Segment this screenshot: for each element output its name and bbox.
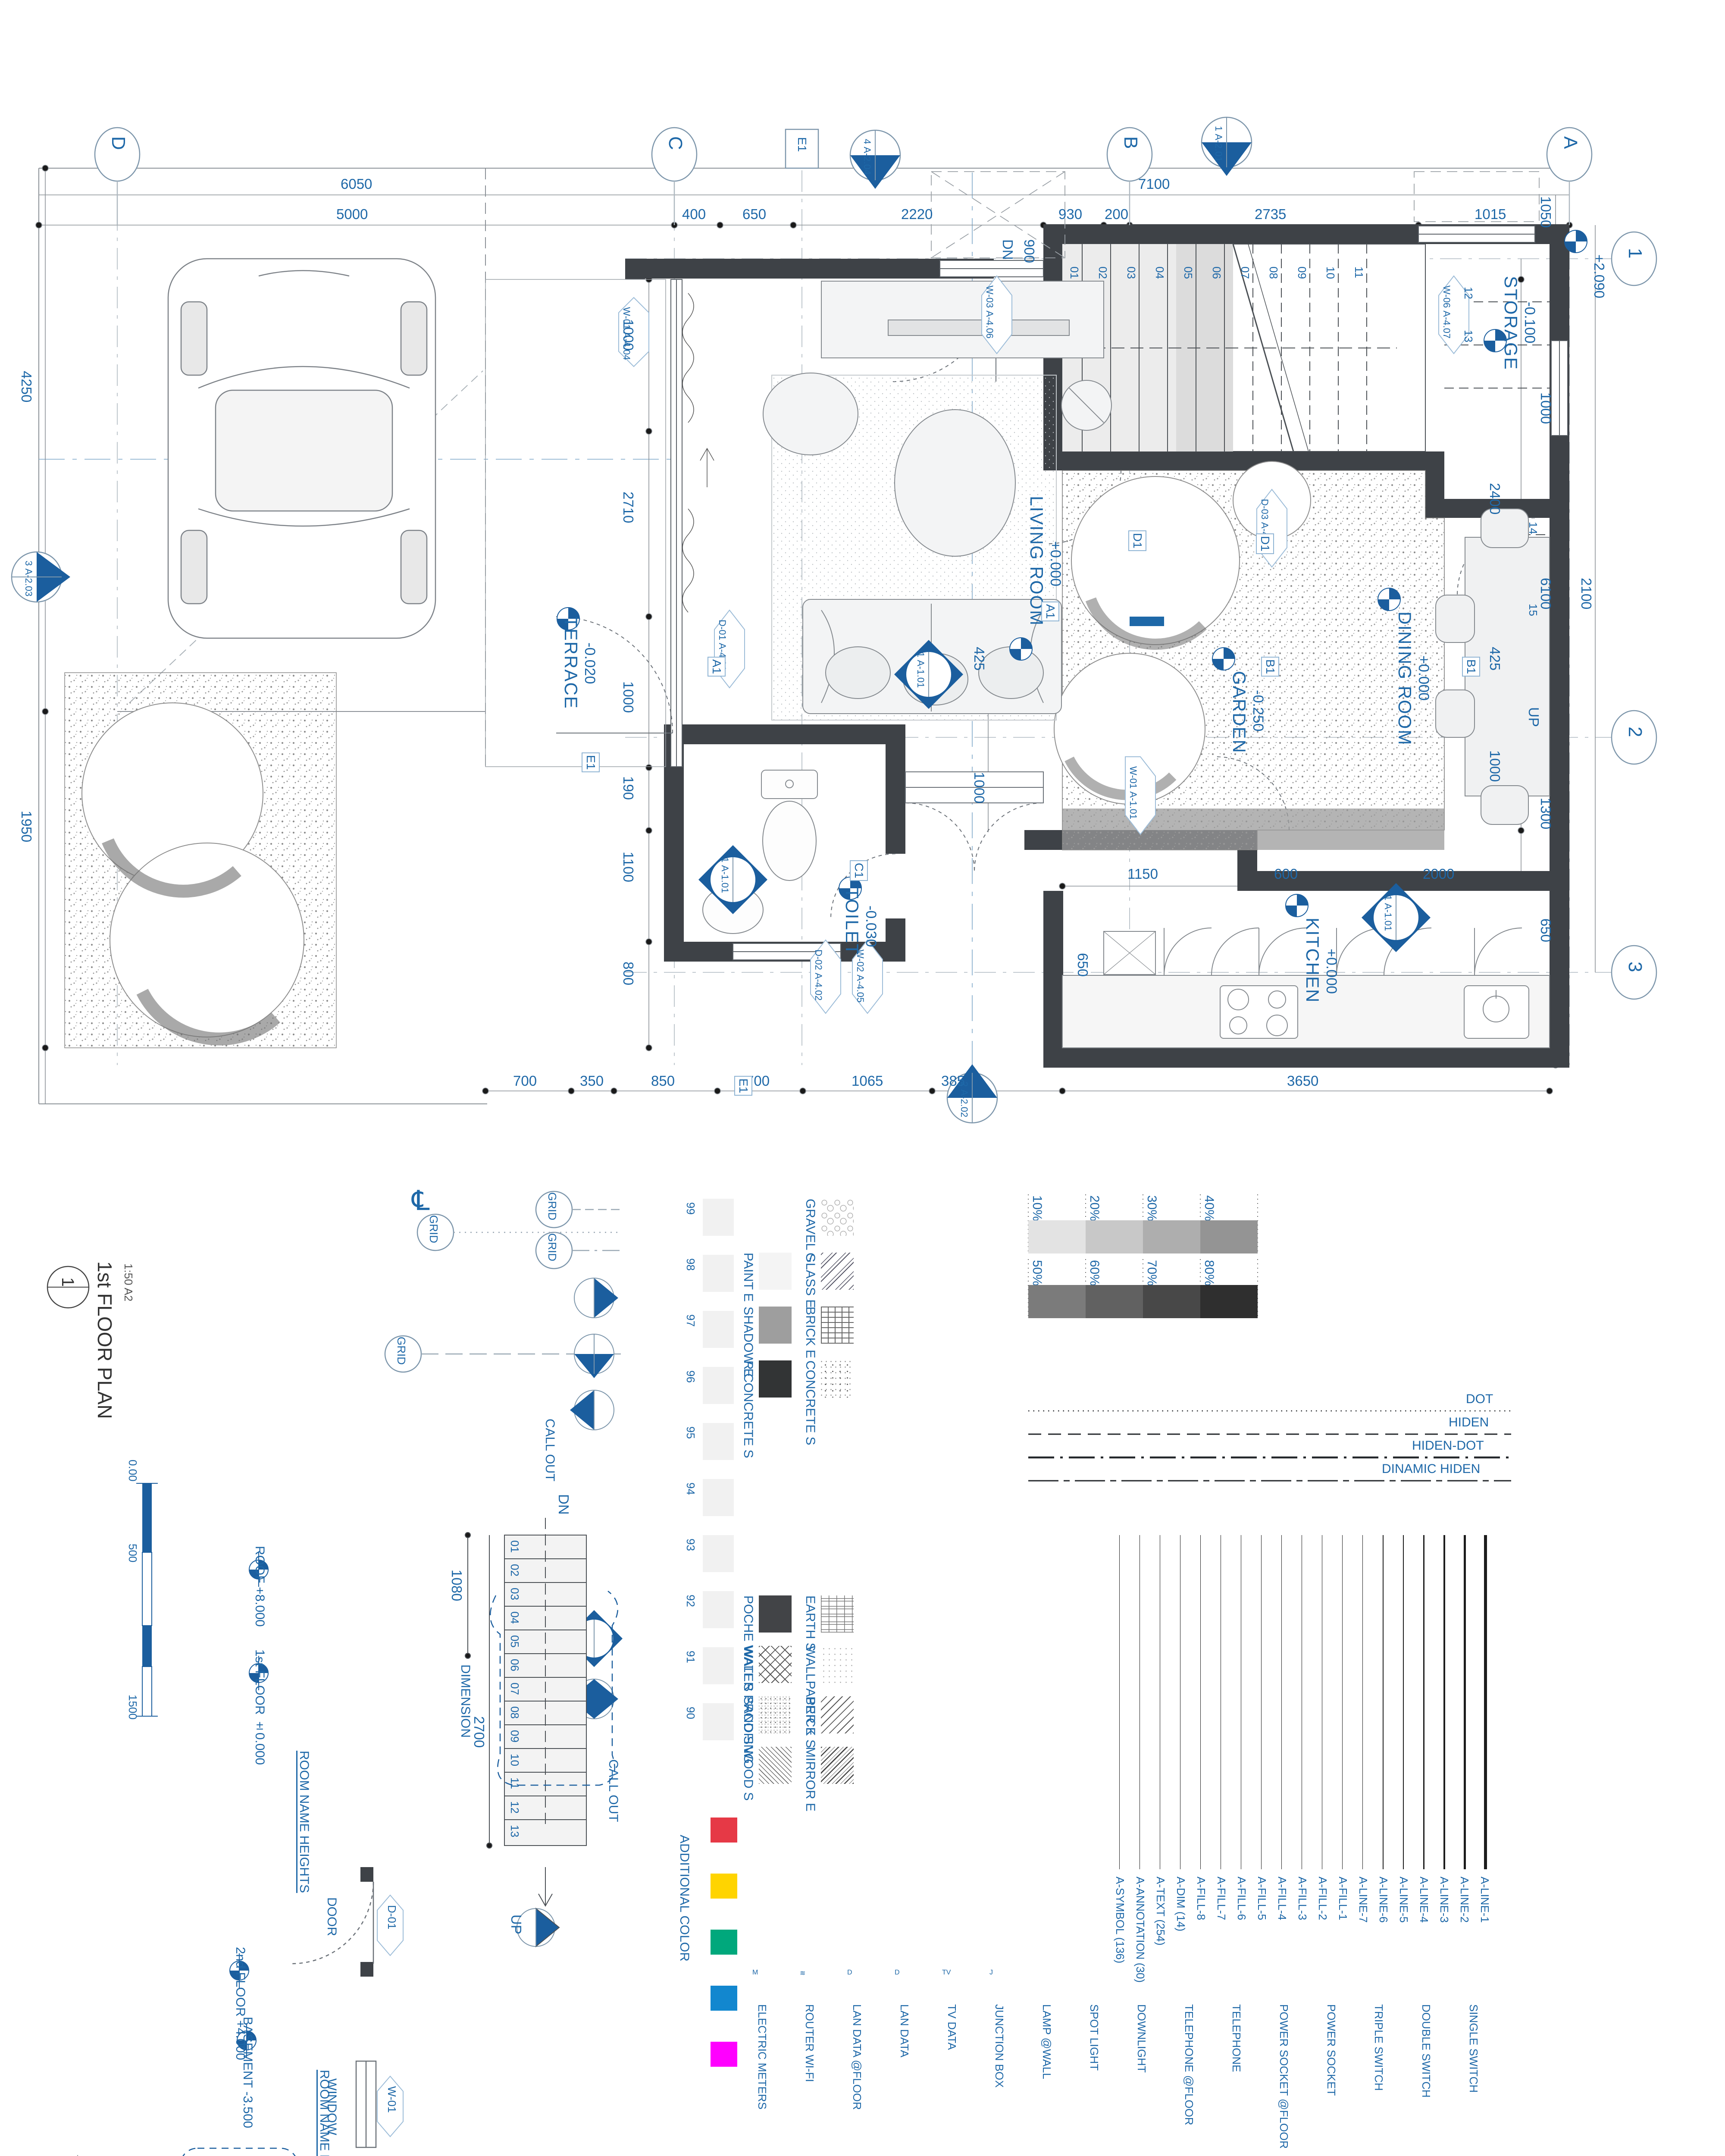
legend-stair-step: 13 (508, 1825, 521, 1837)
dim: 850 (651, 1073, 675, 1089)
window-tag-w03: W-03 A-4.06 (985, 285, 995, 338)
percent-segment (1028, 1220, 1086, 1253)
material-swatch (759, 1307, 792, 1344)
toilet-fixtures (703, 770, 817, 934)
number-swatch-label: 97 (684, 1314, 697, 1327)
symbol-label: LAN DATA (898, 2004, 911, 2057)
layer-line-label: A-FILL-2 (1316, 1877, 1329, 1920)
material-label: R.CONCRETE S (741, 1360, 755, 1458)
symbol-glyph (1464, 1969, 1484, 1989)
layer-line-sample (1342, 1535, 1343, 1869)
number-swatch-box (703, 1703, 734, 1740)
symbol-glyph: D (895, 1969, 914, 1989)
stair-step-13: 13 (1462, 330, 1475, 342)
callout-tag-d1b: D1 (1256, 533, 1274, 554)
percent-label: 70% (1144, 1260, 1159, 1286)
legend-stair-step: 01 (508, 1540, 521, 1553)
material-label: BRICK E (803, 1307, 817, 1358)
number-swatch-box (703, 1423, 734, 1460)
layer-line-sample (1484, 1535, 1487, 1869)
number-swatch-label: 99 (684, 1202, 697, 1215)
grid-bubble-c: C (664, 136, 686, 150)
symbol-label: DOUBLE SWITCH (1419, 2004, 1433, 2098)
material-label: SAND S (741, 1696, 755, 1745)
additional-color-swatch (711, 1986, 737, 2011)
dim: 2400 (1487, 483, 1503, 514)
scalebar-0: 0.00 (126, 1460, 139, 1482)
dim: 650 (1537, 918, 1554, 942)
dim: 7100 (1138, 176, 1170, 192)
stair-step: 04 (1153, 266, 1166, 279)
room-kitchen: KITCHEN (1302, 918, 1323, 1003)
symbol-glyph (1321, 1969, 1341, 1989)
grid-bubble-b: B (1120, 136, 1141, 149)
stair-step: 01 (1068, 266, 1081, 279)
legend-stair-step: 06 (508, 1659, 521, 1671)
material-swatch (821, 1696, 854, 1733)
material-swatch (759, 1360, 792, 1398)
dim: 1000 (620, 681, 636, 713)
number-swatch-label: 95 (684, 1426, 697, 1439)
layer-line-sample (1362, 1535, 1363, 1869)
symbol-label: SPOT LIGHT (1087, 2004, 1101, 2071)
callout-tag-d1a: D1 (1128, 530, 1146, 551)
dim: 425 (1487, 647, 1503, 671)
linestyle-dinamic-hiden: DINAMIC HIDEN (1382, 1462, 1480, 1476)
grid-legend-bubble: GRID (545, 1233, 559, 1261)
interior-elev-tag: 1 A-1.01 (720, 857, 730, 893)
number-swatch-box (703, 1311, 734, 1348)
room-toilet: TOILET (842, 887, 862, 956)
material-label: WOOD S (741, 1747, 755, 1801)
symbol-label: POWER SOCKET (1324, 2004, 1338, 2096)
legend-callout-label-2: CALL OUT (606, 1759, 620, 1822)
number-swatch-label: 90 (684, 1707, 697, 1719)
stair-dn: DN (999, 239, 1016, 260)
interior-elev-tag: 1 A-1.01 (916, 652, 926, 688)
legend-stair-step: 09 (508, 1730, 521, 1742)
legend-dn: DN (555, 1494, 572, 1515)
stair-level: +2.090 (1591, 254, 1607, 298)
layer-line-label: A-FILL-1 (1336, 1877, 1349, 1920)
dim: 1000 (1487, 750, 1503, 782)
legend-dimension-label: DIMENSION (458, 1664, 473, 1738)
symbol-glyph (1037, 1969, 1057, 1989)
percent-segment (1086, 1285, 1143, 1318)
additional-color-swatch (711, 1930, 737, 1955)
level-roof: ROOF +8.000 (252, 1546, 267, 1627)
material-swatch (821, 1646, 854, 1683)
symbol-label: JUNCTION BOX (992, 2004, 1006, 2088)
number-swatch-box (703, 1479, 734, 1516)
layer-line-label: A-LINE-5 (1397, 1877, 1410, 1923)
percent-label: 80% (1202, 1260, 1216, 1286)
scalebar-500: 500 (126, 1544, 139, 1562)
dim: 1050 (1537, 196, 1554, 228)
dim: 650 (742, 206, 766, 222)
symbol-glyph: J (989, 1969, 1009, 1989)
layer-line-sample (1423, 1535, 1424, 1869)
room-terrace-level: -0.020 (581, 642, 598, 684)
window-tag-w01: W-01 A-4.04 (622, 307, 632, 360)
additional-color-label: ADDITIONAL COLOR (677, 1835, 692, 1962)
number-swatch-box (703, 1535, 734, 1572)
stair-up: UP (1525, 707, 1542, 727)
layer-line-sample (1180, 1535, 1180, 1869)
grid-legend-bubble: GRID (394, 1337, 408, 1365)
dim: 2100 (1578, 578, 1594, 609)
legend-stair-step: 05 (508, 1635, 521, 1648)
layer-line-sample (1200, 1535, 1201, 1869)
material-swatch (759, 1747, 792, 1784)
stair-step-15: 15 (1526, 604, 1540, 616)
callout-tag-c1: C1 (850, 860, 868, 881)
dim: 1065 (852, 1073, 883, 1089)
layer-line-sample (1281, 1535, 1282, 1869)
symbol-glyph (1369, 1969, 1389, 1989)
legend-dim-2700: 2700 (471, 1716, 487, 1748)
material-label: GLASS E (803, 1253, 817, 1308)
car (168, 259, 435, 638)
legend-levels-glyphs (180, 1552, 298, 2156)
material-label: MIRROR E (803, 1747, 817, 1811)
symbol-glyph (1084, 1969, 1104, 1989)
stair-step: 11 (1352, 266, 1365, 278)
callout-tag-e1c: E1 (734, 1076, 752, 1096)
number-swatch-box (703, 1591, 734, 1628)
material-swatch (821, 1307, 854, 1344)
dim: 2220 (901, 206, 933, 222)
room-terrace: TERRACE (560, 617, 581, 709)
layer-line-label: A-FILL-4 (1275, 1877, 1289, 1920)
interior-elev-tag: 1 A-1.01 (1383, 895, 1393, 931)
dim: 1100 (620, 852, 636, 882)
layer-line-sample (1403, 1535, 1404, 1869)
percent-label: 20% (1087, 1195, 1102, 1221)
layer-line-sample (1383, 1535, 1384, 1869)
number-swatch-label: 96 (684, 1370, 697, 1383)
legend-callout-label-1: CALL OUT (542, 1419, 557, 1482)
symbol-glyph: D (847, 1969, 867, 1989)
number-swatch-label: 93 (684, 1539, 697, 1551)
layer-line-label: A-FILL-5 (1255, 1877, 1268, 1920)
dim: 4250 (18, 371, 34, 402)
dim: 1015 (1475, 206, 1506, 222)
symbol-label: ELECTRIC METERS (755, 2004, 769, 2109)
symbol-glyph (1416, 1969, 1436, 1989)
number-swatch-label: 98 (684, 1258, 697, 1271)
percent-segment (1143, 1285, 1200, 1318)
plan-title-number: 1 (58, 1277, 77, 1287)
material-swatch (821, 1360, 854, 1398)
symbol-label: LAMP @WALL (1040, 2004, 1053, 2079)
window-tag-w02: W-02 A-4.05 (855, 950, 865, 1003)
room-storage: STORAGE (1500, 276, 1521, 370)
dim: 190 (620, 776, 636, 800)
material-swatch (821, 1199, 854, 1236)
percent-segment (1086, 1220, 1143, 1253)
stair-step: 09 (1295, 266, 1309, 279)
legend-up: UP (508, 1915, 524, 1934)
legend-door-tag: D-01 (385, 1905, 398, 1929)
section-marker-4: 4 A-2.04 (862, 139, 872, 175)
additional-color-swatch (711, 2042, 737, 2067)
dim: 350 (580, 1073, 604, 1089)
layer-line-label: A-ANNOTATION (30) (1133, 1877, 1147, 1983)
dim: 3650 (1287, 1073, 1318, 1089)
stair-step: 08 (1267, 266, 1280, 279)
plan-title: 1st FLOOR PLAN (93, 1261, 116, 1419)
percent-label: 30% (1144, 1195, 1159, 1221)
layer-line-sample (1119, 1535, 1120, 1869)
dim: 5000 (336, 206, 368, 222)
symbol-glyph: ≋ (800, 1969, 820, 1989)
stair-step-12: 12 (1462, 287, 1475, 299)
layer-line-label: A-LINE-1 (1478, 1877, 1491, 1923)
dim: 650 (1074, 953, 1091, 977)
percent-label: 60% (1087, 1260, 1102, 1286)
symbol-label: SINGLE SWITCH (1467, 2004, 1480, 2093)
layer-line-sample (1464, 1535, 1466, 1869)
layer-line-sample (1221, 1535, 1221, 1869)
symbol-label: POWER SOCKET @FLOOR (1277, 2004, 1290, 2149)
layer-line-label: A-SYMBOL (136) (1113, 1877, 1127, 1963)
linestyle-hiden-dot: HIDEN-DOT (1412, 1438, 1484, 1453)
linestyle-hiden: HIDEN (1449, 1415, 1489, 1430)
dim: 1000 (1537, 392, 1554, 424)
material-swatch (759, 1646, 792, 1683)
layer-line-label: A-FILL-6 (1235, 1877, 1248, 1920)
dim: 700 (513, 1073, 537, 1089)
legend-stair-step: 02 (508, 1564, 521, 1576)
dim: 2735 (1255, 206, 1286, 222)
stair-step-14: 14 (1526, 522, 1540, 534)
room-dining: DINING ROOM (1394, 611, 1415, 746)
stair-step: 03 (1124, 266, 1138, 279)
material-swatch (821, 1253, 854, 1290)
layer-line-label: A-LINE-2 (1458, 1877, 1471, 1923)
symbol-label: TELEPHONE (1230, 2004, 1243, 2072)
layer-line-sample (1302, 1535, 1302, 1869)
site-trees (65, 673, 336, 1048)
legend-stair-step: 03 (508, 1588, 521, 1600)
material-label: BRICK S (803, 1696, 817, 1748)
dim: 800 (620, 962, 636, 985)
legend-stair-step: 10 (508, 1754, 521, 1766)
layer-line-label: A-LINE-4 (1417, 1877, 1431, 1923)
legend-window: WINDOW (324, 2078, 339, 2135)
plan-title-scale: 1:50 A2 (122, 1263, 135, 1301)
room-dining-level: +0.000 (1415, 655, 1432, 701)
section-marker-3: 3 A-2.03 (24, 561, 34, 596)
room-garden-level: -0.250 (1249, 690, 1266, 731)
legend-stair-step: 07 (508, 1683, 521, 1695)
level-1st: 1st FLOOR ±0.000 (252, 1649, 267, 1765)
symbol-label: TV DATA (945, 2004, 958, 2050)
number-swatch-label: 92 (684, 1595, 697, 1607)
symbol-label: DOWNLIGHT (1135, 2004, 1148, 2073)
layer-line-label: A-LINE-6 (1377, 1877, 1390, 1923)
material-label: CONCRETE S (803, 1360, 817, 1445)
legend-window-tag: W-01 (385, 2086, 398, 2113)
room-living-level: +0.000 (1047, 541, 1064, 586)
number-swatch-box (703, 1647, 734, 1684)
room-kitchen-level: +0.000 (1323, 949, 1340, 994)
dim: 6100 (1537, 578, 1554, 609)
symbol-glyph (1227, 1969, 1246, 1989)
dim: 6050 (341, 176, 372, 192)
layer-line-sample (1322, 1535, 1322, 1869)
legend-stair-step: 11 (508, 1777, 521, 1789)
centerline-symbol: ℄ (405, 1185, 437, 1217)
window-tag-w01b: W-01 A-1.01 (1128, 766, 1138, 819)
layer-line-label: A-FILL-3 (1296, 1877, 1309, 1920)
material-swatch (821, 1595, 854, 1633)
layer-line-sample (1241, 1535, 1241, 1869)
room-toilet-level: -0.030 (862, 906, 879, 947)
callout-tag-b1b: B1 (1462, 657, 1480, 677)
symbol-label: TELEPHONE @FLOOR (1182, 2004, 1196, 2125)
door-tag-d02: D-02 A-4.02 (814, 950, 823, 1001)
grid-tag-e1: E1 (795, 137, 809, 152)
material-swatch (821, 1747, 854, 1784)
layer-line-label: A-TEXT (254) (1154, 1877, 1167, 1946)
layer-line-label: A-DIM (14) (1174, 1877, 1187, 1931)
layer-line-label: A-LINE-3 (1437, 1877, 1451, 1923)
number-swatch-box (703, 1367, 734, 1404)
stair-step: 10 (1324, 266, 1337, 279)
layer-line-sample (1443, 1535, 1445, 1869)
dim: 2000 (1423, 866, 1454, 882)
symbol-label: LAN DATA @FLOOR (850, 2004, 864, 2110)
dim: 200 (1105, 206, 1128, 222)
material-swatch (759, 1696, 792, 1733)
dim: 1300 (1537, 798, 1554, 829)
level-basement: BASEMENT -3.500 (240, 2017, 255, 2128)
dim: 600 (1274, 866, 1298, 882)
callout-tag-b1a: B1 (1261, 657, 1279, 677)
layer-line-sample (1160, 1535, 1160, 1869)
number-swatch-label: 94 (684, 1482, 697, 1495)
callout-tag-a1: A1 (1041, 602, 1059, 621)
symbol-glyph (1179, 1969, 1199, 1989)
grid-bubble-3: 3 (1624, 962, 1646, 972)
stair-step: 05 (1181, 266, 1195, 279)
symbol-label: ROUTER WI-FI (803, 2004, 816, 2082)
legend-dim-1080: 1080 (448, 1570, 465, 1601)
grid-bubble-2: 2 (1624, 727, 1646, 737)
room-storage-level: -0.100 (1521, 302, 1538, 343)
symbol-glyph (1274, 1969, 1294, 1989)
grid-legend-bubble: GRID (545, 1192, 559, 1220)
percent-segment (1028, 1285, 1086, 1318)
legend-stair-step: 12 (508, 1801, 521, 1814)
percent-label: 50% (1030, 1260, 1044, 1286)
material-swatch (759, 1253, 792, 1290)
grid-bubble-1: 1 (1624, 248, 1646, 258)
stair-dn-width: 900 (1021, 239, 1037, 263)
callout-tag-e1b: E1 (582, 752, 600, 772)
scalebar-1500: 1500 (126, 1695, 139, 1720)
section-marker-2: 2 A-2.02 (959, 1081, 969, 1117)
percent-label: 40% (1202, 1195, 1216, 1221)
dim: 930 (1058, 206, 1082, 222)
stair-step: 06 (1210, 266, 1223, 279)
grid-bubble-a: A (1559, 136, 1581, 149)
grid-legend-bubble: GRID (427, 1215, 440, 1243)
section-marker-1: 1 A-2.01 (1214, 126, 1224, 162)
callout-tag-a1b: A1 (708, 657, 726, 677)
room-garden: GARDEN (1229, 671, 1249, 754)
layer-line-label: A-LINE-7 (1356, 1877, 1370, 1923)
dim: 2710 (620, 492, 636, 523)
layer-line-label: A-FILL-8 (1194, 1877, 1208, 1920)
additional-color-swatch (711, 1874, 737, 1899)
stair-step: 07 (1238, 266, 1252, 279)
grid-bubble-d: D (107, 136, 129, 150)
legend-door: DOOR (324, 1897, 339, 1936)
legend-stair-example (465, 1518, 618, 1946)
layer-line-sample (1140, 1535, 1140, 1869)
dim: 425 (971, 647, 987, 671)
dim: 1000 (971, 772, 987, 803)
additional-color-swatch (711, 1818, 737, 1843)
number-swatch-box (703, 1255, 734, 1292)
percent-label: 10% (1030, 1195, 1044, 1221)
material-swatch (759, 1595, 792, 1633)
material-label: EARTH S (803, 1595, 817, 1651)
stair-step: 02 (1096, 266, 1109, 279)
window-tag-w06: W-06 A-4.07 (1442, 285, 1452, 338)
number-swatch-label: 91 (684, 1651, 697, 1663)
dim: 400 (682, 206, 706, 222)
symbol-glyph: TV (942, 1969, 962, 1989)
garden (1054, 461, 1444, 850)
legend-stair-step: 08 (508, 1706, 521, 1719)
percent-segment (1200, 1285, 1258, 1318)
linestyle-dot: DOT (1466, 1392, 1493, 1407)
dim: 1150 (1127, 866, 1158, 882)
layer-line-label: A-FILL-7 (1215, 1877, 1228, 1920)
dim: 1950 (18, 811, 34, 842)
layer-line-sample (1261, 1535, 1262, 1869)
percent-segment (1143, 1220, 1200, 1253)
percent-segment (1200, 1220, 1258, 1253)
legend-stair-step: 04 (508, 1611, 521, 1624)
symbol-glyph (1132, 1969, 1152, 1989)
number-swatch-box (703, 1199, 734, 1236)
symbol-glyph: M (752, 1969, 772, 1989)
symbol-label: TRIPLE SWITCH (1372, 2004, 1385, 2091)
material-label: PAINT E (741, 1253, 755, 1302)
room-name-heights: ROOM NAME HEIGHTS (297, 1751, 311, 1893)
